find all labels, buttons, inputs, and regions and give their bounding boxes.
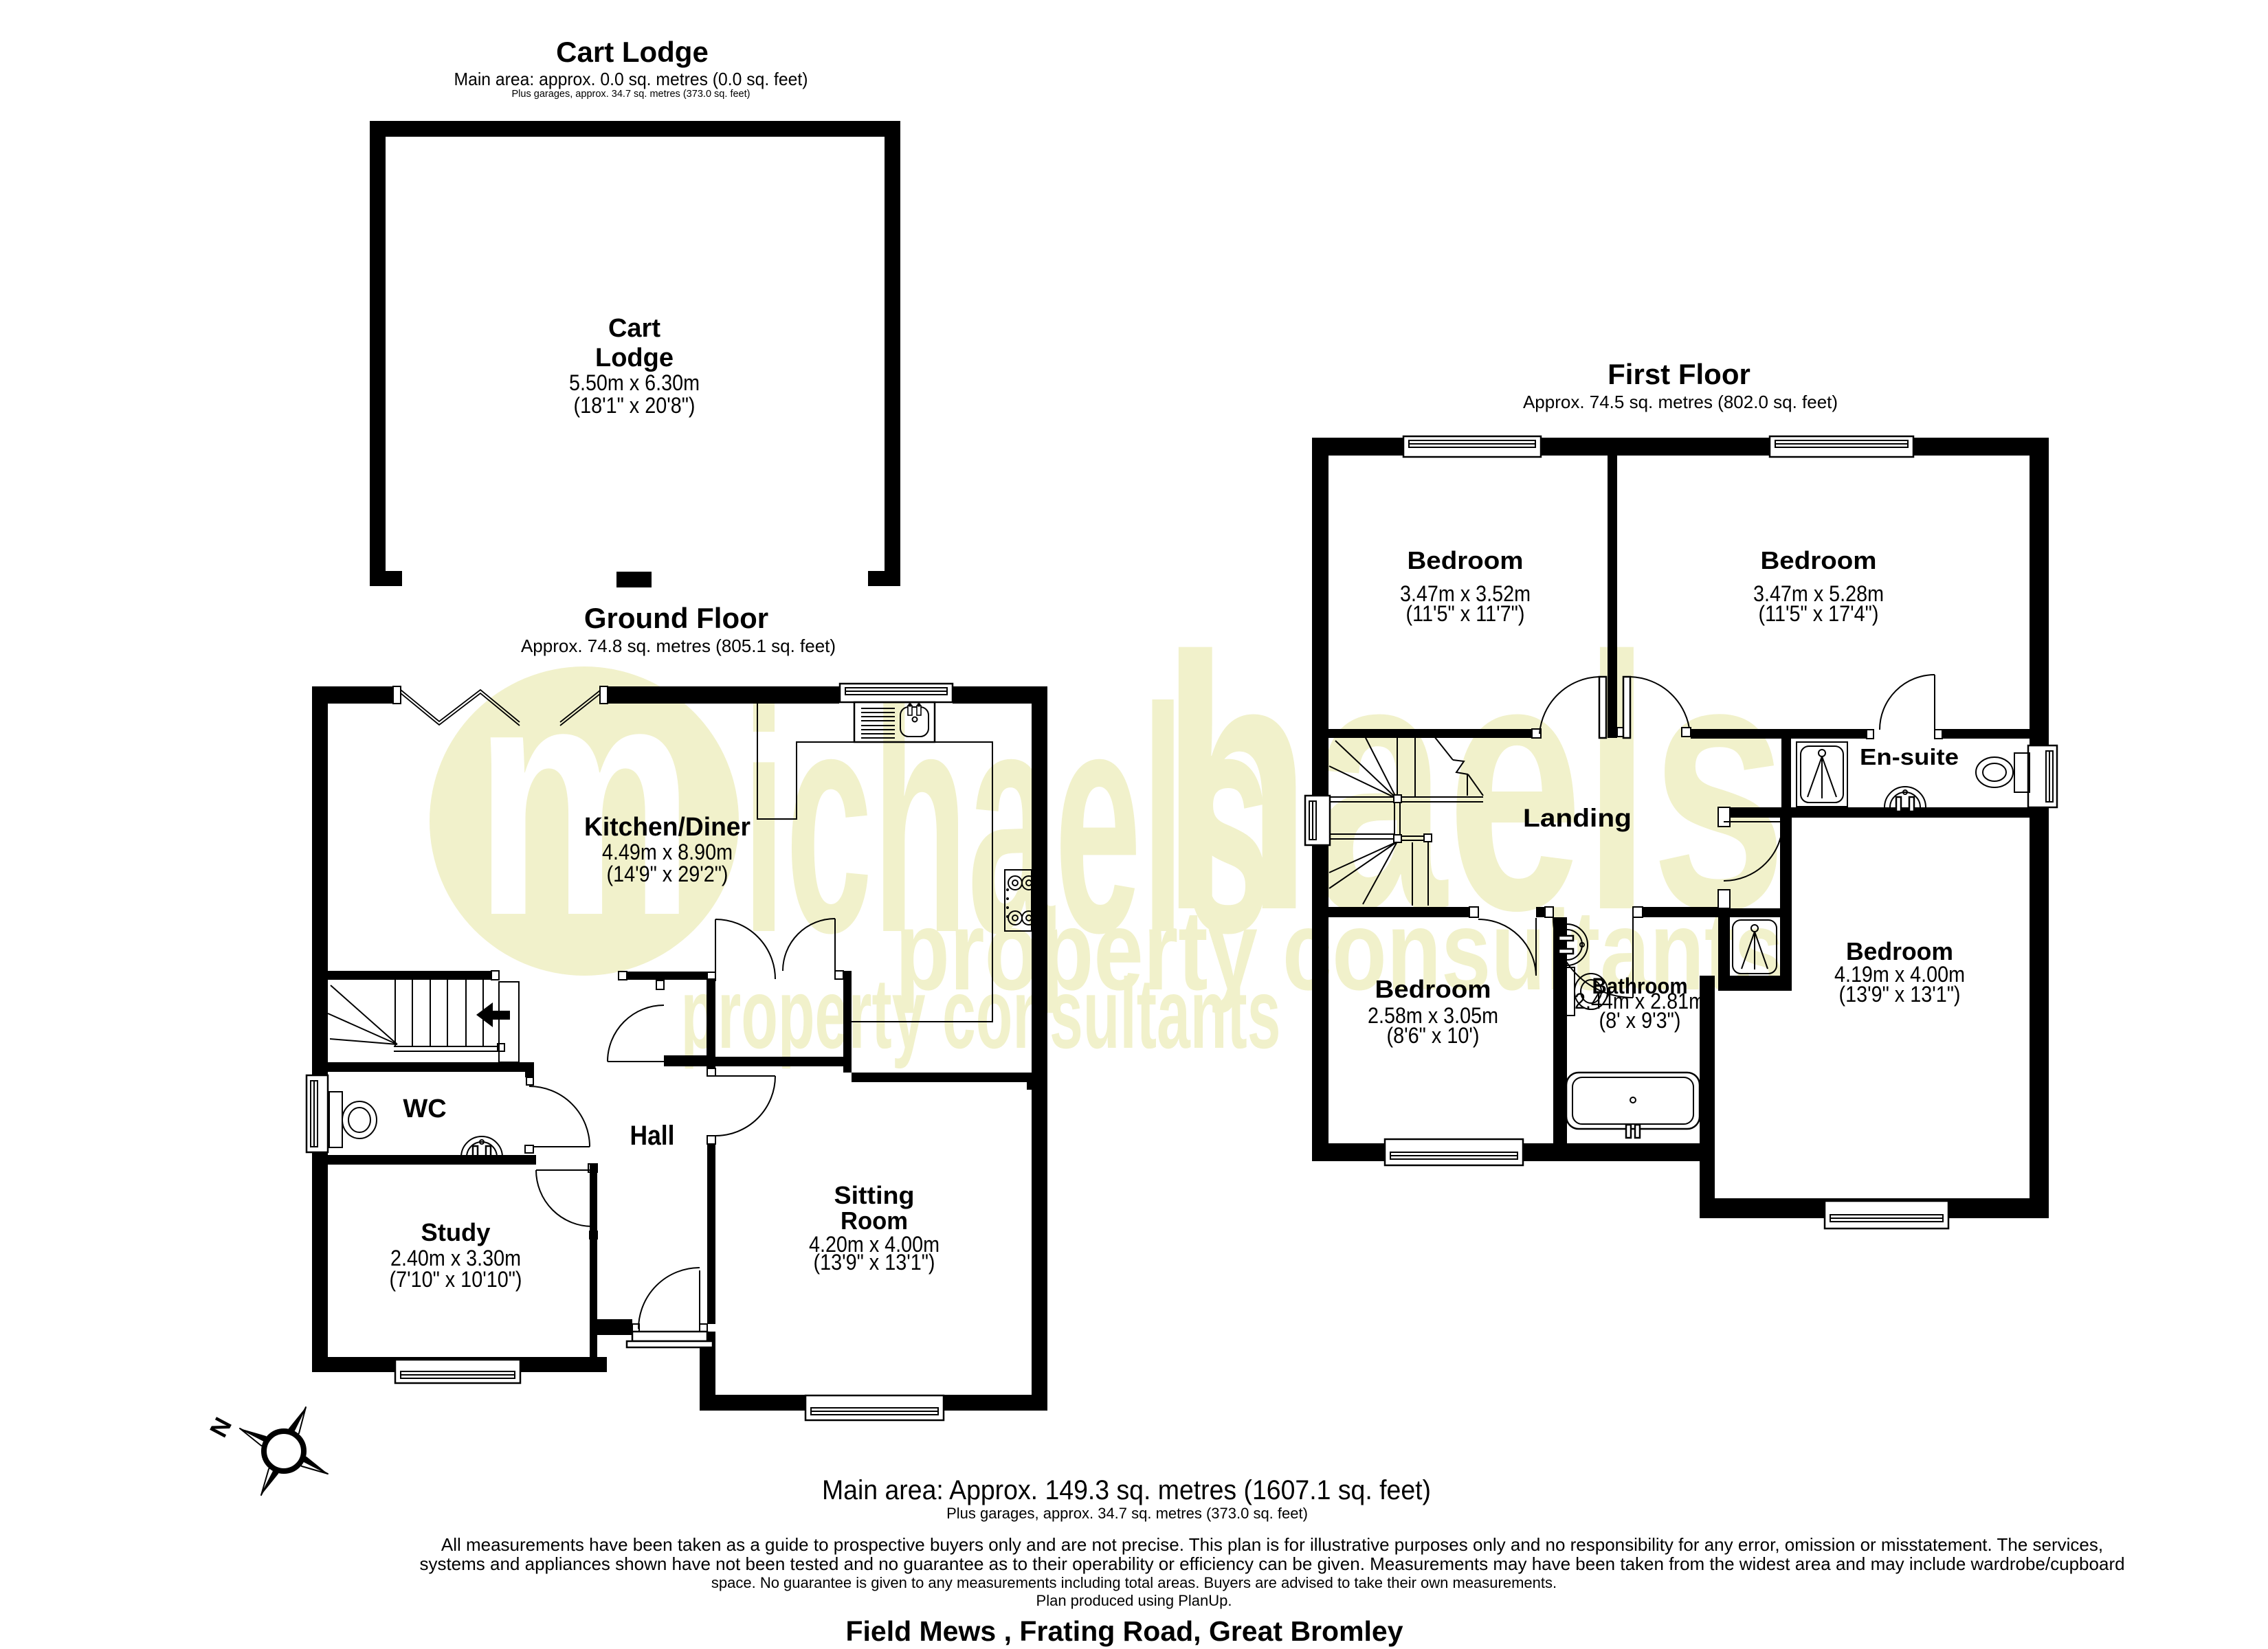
svg-text:(8'6" x 10'): (8'6" x 10'): [1387, 1023, 1480, 1048]
svg-text:Field Mews , Frating Road, Gre: Field Mews , Frating Road, Great Bromley: [845, 1615, 1403, 1647]
svg-text:Bedroom: Bedroom: [1408, 546, 1524, 574]
svg-text:Cart Lodge: Cart Lodge: [556, 36, 709, 68]
svg-text:(8' x 9'3"): (8' x 9'3"): [1599, 1008, 1681, 1033]
svg-text:(11'5" x 11'7"): (11'5" x 11'7"): [1406, 601, 1525, 626]
svg-text:(18'1" x 20'8"): (18'1" x 20'8"): [574, 393, 696, 418]
svg-text:Lodge: Lodge: [595, 344, 674, 372]
svg-text:5.50m x 6.30m: 5.50m x 6.30m: [569, 370, 700, 395]
svg-text:Sitting: Sitting: [834, 1181, 915, 1209]
svg-text:Bedroom: Bedroom: [1846, 937, 1953, 965]
svg-text:(13'9" x 13'1"): (13'9" x 13'1"): [814, 1250, 935, 1275]
svg-text:space. No guarantee is given t: space. No guarantee is given to any meas…: [711, 1574, 1557, 1591]
svg-text:Main area: approx. 0.0 sq. met: Main area: approx. 0.0 sq. metres (0.0 s…: [454, 69, 808, 89]
svg-text:Cart: Cart: [608, 314, 660, 343]
svg-text:WC: WC: [403, 1095, 446, 1123]
svg-text:Plus garages, approx. 34.7 sq.: Plus garages, approx. 34.7 sq. metres (3…: [512, 88, 751, 100]
svg-text:Ground Floor: Ground Floor: [584, 602, 768, 634]
svg-text:(13'9" x 13'1"): (13'9" x 13'1"): [1839, 982, 1961, 1007]
svg-text:Approx. 74.8 sq. metres (805.1: Approx. 74.8 sq. metres (805.1 sq. feet): [521, 636, 836, 656]
svg-text:(11'5" x 17'4"): (11'5" x 17'4"): [1759, 601, 1879, 626]
svg-text:Room: Room: [841, 1207, 908, 1235]
svg-text:Study: Study: [421, 1218, 491, 1246]
svg-text:Bedroom: Bedroom: [1375, 975, 1491, 1003]
svg-text:All measurements have been tak: All measurements have been taken as a gu…: [441, 1534, 2103, 1555]
svg-text:En-suite: En-suite: [1860, 744, 1959, 770]
svg-text:Hall: Hall: [630, 1121, 675, 1151]
svg-text:(14'9" x 29'2"): (14'9" x 29'2"): [607, 862, 729, 886]
svg-text:Landing: Landing: [1523, 804, 1632, 832]
svg-text:m: m: [474, 612, 694, 985]
svg-text:Bedroom: Bedroom: [1761, 546, 1877, 574]
svg-text:First Floor: First Floor: [1608, 358, 1750, 390]
svg-text:Approx. 74.5 sq. metres (802.0: Approx. 74.5 sq. metres (802.0 sq. feet): [1523, 392, 1838, 412]
svg-text:Plus garages, approx. 34.7 sq.: Plus garages, approx. 34.7 sq. metres (3…: [946, 1505, 1308, 1522]
svg-text:4.49m x 8.90m: 4.49m x 8.90m: [602, 840, 733, 864]
svg-text:(7'10" x 10'10"): (7'10" x 10'10"): [390, 1267, 522, 1292]
svg-text:Plan produced using PlanUp.: Plan produced using PlanUp.: [1036, 1592, 1232, 1609]
svg-text:systems and appliances shown h: systems and appliances shown have not be…: [419, 1553, 2124, 1574]
svg-text:Main area: Approx. 149.3 sq. m: Main area: Approx. 149.3 sq. metres (160…: [822, 1475, 1431, 1505]
svg-text:Kitchen/Diner: Kitchen/Diner: [584, 813, 751, 842]
